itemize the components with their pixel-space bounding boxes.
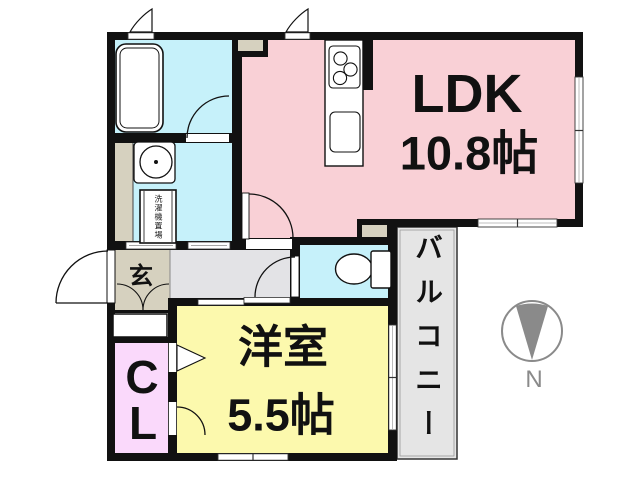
ldk-door-opening bbox=[246, 239, 292, 249]
room-hallway bbox=[170, 250, 290, 298]
western-room-label: 洋室 bbox=[238, 325, 328, 370]
wall-bath-ldk bbox=[232, 32, 242, 250]
western-sliding-door-panel-1 bbox=[198, 300, 244, 306]
washbasin-drain bbox=[154, 160, 158, 164]
genkan-label: 玄 bbox=[129, 265, 153, 289]
western-sliding-door-panel-2 bbox=[244, 298, 290, 304]
ldk-label: LDK bbox=[412, 67, 523, 121]
pipe-space-top bbox=[238, 40, 263, 51]
kitchen-window-casement-icon bbox=[286, 9, 308, 32]
wall-top bbox=[107, 32, 583, 40]
bathtub bbox=[116, 44, 163, 132]
closet-opening-lower bbox=[169, 402, 176, 435]
compass bbox=[502, 301, 562, 361]
bathroom-door-opening bbox=[186, 134, 229, 142]
shoe-box bbox=[113, 314, 167, 337]
stove-burner-1 bbox=[334, 52, 347, 65]
closet-label-l: L bbox=[129, 400, 157, 446]
toilet-tank bbox=[371, 251, 391, 288]
kitchen-window bbox=[285, 33, 310, 39]
kitchen-sink bbox=[330, 112, 360, 152]
closet-label-c: C bbox=[125, 354, 158, 400]
balcony-label: バルコニー bbox=[413, 233, 441, 453]
floor-plan: LDK 10.8帖 洋室 5.5帖 玄 C L バルコニー 洗濯機置場 N bbox=[0, 0, 640, 480]
ldk-size-label: 10.8帖 bbox=[400, 130, 538, 177]
room-ldk-extension bbox=[242, 219, 357, 238]
pipe-space-balcony bbox=[362, 225, 387, 237]
western-room-size-label: 5.5帖 bbox=[227, 393, 335, 438]
ldk-door-leaf bbox=[242, 193, 249, 239]
toilet-bowl bbox=[336, 254, 373, 284]
compass-n-label: N bbox=[525, 368, 542, 392]
bathroom-window bbox=[128, 33, 154, 39]
wall-genkan-bottom bbox=[107, 310, 177, 313]
stove-burner-3 bbox=[333, 71, 346, 84]
closet-opening-upper bbox=[169, 343, 176, 372]
washing-machine-label: 洗濯機置場 bbox=[154, 195, 162, 240]
entrance-door-leaf bbox=[107, 250, 115, 303]
entrance-door-arc bbox=[56, 251, 108, 303]
toilet-door-leaf bbox=[291, 256, 299, 297]
north-arrow-icon bbox=[516, 304, 548, 361]
washroom-niche bbox=[112, 143, 133, 241]
wall-closet-top bbox=[107, 337, 177, 343]
wall-kitchen-stub bbox=[363, 40, 373, 90]
bathroom-window-casement-icon bbox=[130, 9, 152, 32]
